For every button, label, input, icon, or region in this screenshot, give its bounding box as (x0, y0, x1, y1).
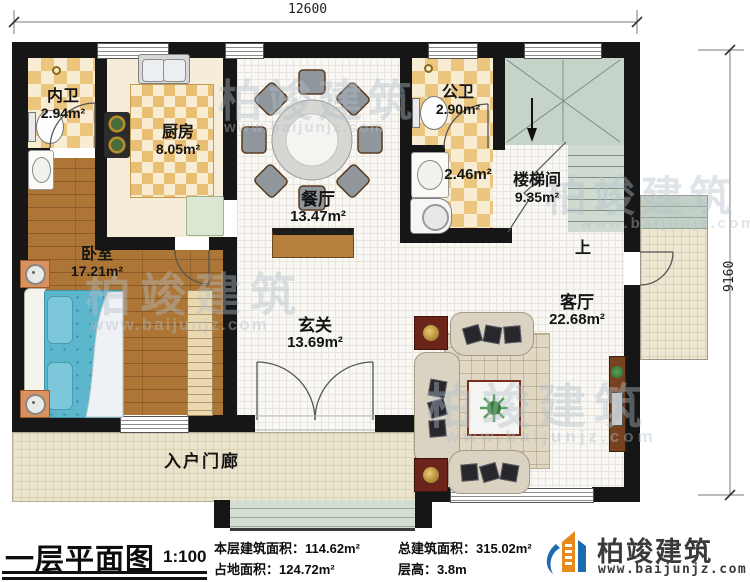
stat-footprint-area: 占地面积：124.72m² (214, 559, 335, 578)
stove (104, 112, 130, 158)
fridge (186, 196, 224, 236)
window-north-2 (225, 43, 264, 59)
room-label-ensuite: 内卫2.94m² (41, 88, 85, 122)
plan-scale: 1:100 (163, 547, 206, 567)
ensuite-toilet-tank (28, 112, 36, 142)
nightstand-top (20, 260, 50, 288)
medallion-icon (423, 467, 439, 483)
wall-kitchen-south-stub (209, 237, 237, 250)
wall-stair-west (493, 42, 505, 150)
sofa-pillow (482, 324, 502, 344)
tv (611, 392, 623, 426)
coffee-table (467, 380, 521, 436)
floor-plan-page: 柏竣建筑 www.baijunjz.com 柏竣建筑 www.baijunjz.… (0, 0, 750, 582)
wall-kitchen-east (223, 42, 237, 200)
title-underline (2, 577, 207, 580)
wall-south-bedroom-b (187, 415, 255, 432)
lamp-icon (25, 394, 46, 415)
sofa-left (414, 352, 460, 464)
wall-bedroom-east (223, 250, 237, 415)
stat-floor-area: 本层建筑面积：114.62m² (214, 538, 360, 557)
lamp-icon (25, 264, 46, 285)
sofa-pillow (461, 323, 482, 344)
stair-up-label: 上 (575, 240, 591, 258)
sofa-pillow (503, 325, 521, 343)
wardrobe (187, 290, 213, 416)
end-table-bottom (414, 458, 448, 492)
stair-landing (505, 58, 624, 145)
room-label-bedroom: 卧室17.21m² (71, 246, 123, 280)
room-label-stair: 楼梯间9.35m² (513, 172, 561, 206)
sofa-pillow (478, 461, 499, 482)
stat-floor-height: 层高：3.8m (398, 559, 467, 578)
dimension-right: 9160 (722, 261, 737, 292)
window-north-3 (428, 43, 478, 59)
stair-treads (568, 145, 624, 232)
brand-logo-icon (540, 522, 596, 580)
bed-pillow-1 (47, 296, 73, 344)
room-label-dining: 餐厅13.47m² (290, 190, 346, 226)
room-label-living: 客厅22.68m² (549, 293, 605, 329)
terrace-steps (641, 196, 707, 229)
sofa-pillow (499, 462, 519, 482)
room-label-public-bath: 公卫2.90m² (436, 84, 480, 118)
side-terrace (640, 195, 708, 360)
room-label-kitchen: 厨房8.05m² (156, 124, 200, 158)
window-north-4 (524, 43, 602, 59)
sofa-pillow (426, 397, 447, 418)
window-bedroom-south (120, 416, 189, 433)
sofa-pillow (428, 419, 446, 437)
wall-east-lower (624, 285, 640, 502)
public-toilet-tank (412, 98, 420, 128)
kitchen-sink (138, 54, 190, 84)
wall-south-living-b (592, 487, 640, 502)
bed-pillow-2 (47, 362, 73, 410)
sofa-pillow (427, 378, 447, 398)
washing-machine (410, 198, 452, 234)
room-label-porch: 入户门廊 (164, 452, 240, 471)
title-underline (2, 571, 207, 574)
porch-steps (230, 500, 415, 531)
sofa-top (450, 312, 534, 356)
end-table-top (414, 316, 448, 350)
console-table (272, 228, 354, 258)
sofa-bottom (448, 450, 530, 494)
stat-total-area: 总建筑面积：315.02m² (398, 538, 532, 557)
public-towel-ring (424, 64, 433, 73)
ensuite-towel-ring (52, 66, 61, 75)
brand-url: www.baijunjz.com (598, 562, 747, 577)
nightstand-bottom (20, 390, 50, 418)
porch-step-post-left (214, 500, 230, 528)
room-label-hall: 玄关13.69m² (287, 316, 343, 352)
sofa-pillow (460, 463, 478, 481)
room-label-laundry: 2.46m² (444, 167, 492, 184)
bedroom-vanity (28, 150, 54, 190)
dimension-top: 12600 (288, 2, 327, 17)
tv-plant (611, 366, 623, 378)
wall-east-upper (624, 42, 640, 252)
medallion-icon (423, 325, 439, 341)
porch-step-post-right (415, 500, 432, 528)
